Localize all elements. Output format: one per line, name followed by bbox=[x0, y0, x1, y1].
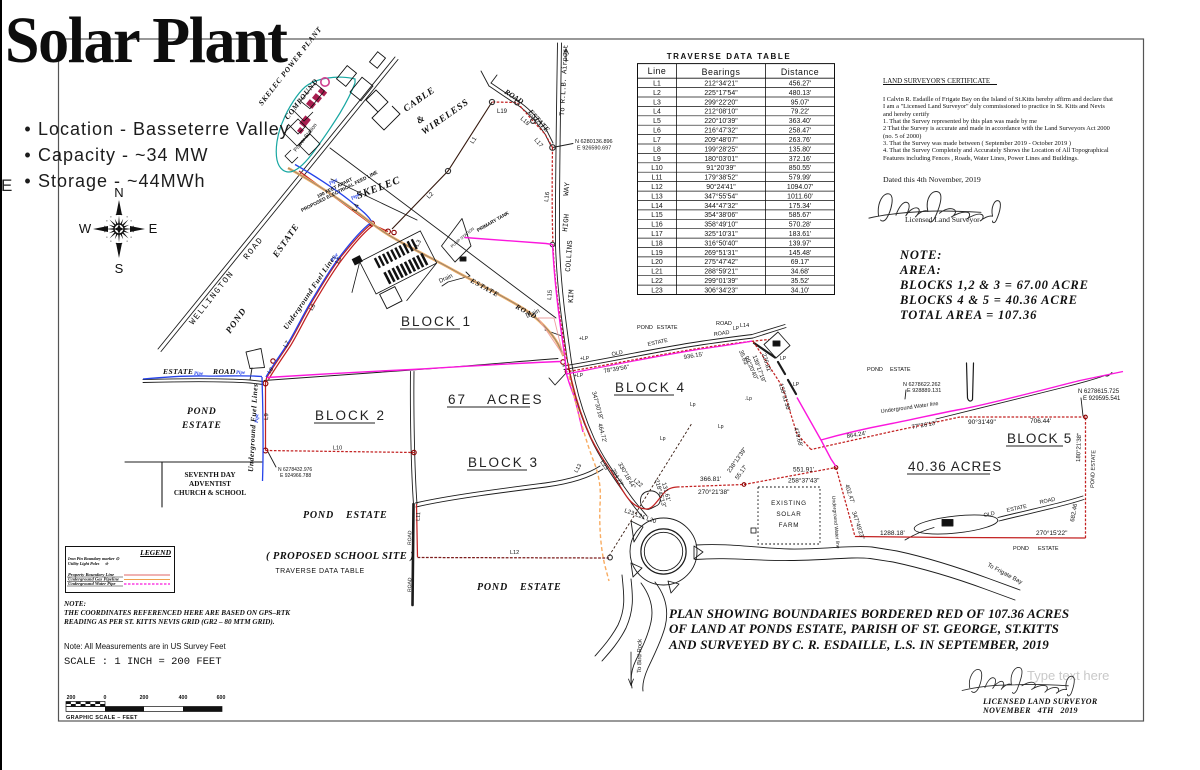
svg-text:WELLINGTON: WELLINGTON bbox=[188, 269, 237, 327]
svg-text:ESTATE: ESTATE bbox=[162, 367, 194, 376]
svg-text:SOLAR: SOLAR bbox=[776, 511, 801, 518]
svg-text:400: 400 bbox=[179, 695, 188, 701]
svg-text:288°59'21": 288°59'21" bbox=[704, 268, 738, 276]
svg-text:OLD: OLD bbox=[983, 511, 995, 519]
svg-text:464.72': 464.72' bbox=[596, 423, 607, 443]
svg-text:ESTATE: ESTATE bbox=[1038, 546, 1059, 552]
svg-text:212°08'10": 212°08'10" bbox=[704, 108, 738, 116]
svg-text:1288.18': 1288.18' bbox=[880, 530, 905, 537]
svg-text:E 924966.788: E 924966.788 bbox=[280, 473, 311, 479]
svg-text:L19: L19 bbox=[651, 250, 663, 257]
svg-text:850.55': 850.55' bbox=[789, 165, 811, 172]
svg-text:479.68': 479.68' bbox=[792, 427, 803, 447]
svg-text:L5: L5 bbox=[653, 118, 661, 125]
svg-text:179°38'52": 179°38'52" bbox=[704, 174, 738, 182]
svg-text:682.46': 682.46' bbox=[1070, 502, 1079, 522]
svg-text:354°38'06": 354°38'06" bbox=[704, 211, 738, 219]
svg-text:ESTATE: ESTATE bbox=[345, 510, 388, 521]
svg-text:LP: LP bbox=[733, 326, 740, 332]
svg-text:L4: L4 bbox=[351, 203, 361, 213]
svg-text:L22: L22 bbox=[651, 278, 663, 285]
svg-text:CABLE: CABLE bbox=[402, 86, 437, 115]
svg-text:L13: L13 bbox=[651, 193, 663, 200]
svg-text:L13: L13 bbox=[574, 463, 584, 474]
svg-text:270°15'22": 270°15'22" bbox=[1036, 529, 1068, 537]
svg-text:L15: L15 bbox=[651, 212, 663, 219]
svg-text:34.68': 34.68' bbox=[791, 269, 810, 276]
svg-text:SEVENTH DAY: SEVENTH DAY bbox=[184, 471, 236, 479]
svg-text:L18: L18 bbox=[651, 240, 663, 247]
svg-text:To Frigate Bay: To Frigate Bay bbox=[986, 562, 1023, 585]
svg-text:( PROPOSED SCHOOL SITE ): ( PROPOSED SCHOOL SITE ) bbox=[266, 551, 414, 562]
svg-text:ESTATE: ESTATE bbox=[519, 582, 562, 593]
svg-text:Pipe: Pipe bbox=[194, 372, 204, 377]
svg-text:L8: L8 bbox=[653, 146, 661, 153]
svg-text:ESTATE: ESTATE bbox=[526, 107, 552, 134]
svg-text:135.80': 135.80' bbox=[789, 146, 811, 153]
svg-text:Pipe: Pipe bbox=[255, 413, 260, 423]
svg-text:306°34'23": 306°34'23" bbox=[704, 286, 738, 294]
svg-text:ESTATE: ESTATE bbox=[181, 421, 222, 431]
svg-text:L9: L9 bbox=[264, 413, 270, 421]
svg-text:L16: L16 bbox=[651, 222, 663, 229]
svg-text:600: 600 bbox=[217, 695, 226, 701]
svg-text:275°47'42": 275°47'42" bbox=[704, 258, 738, 266]
svg-text:216°47'32": 216°47'32" bbox=[704, 127, 738, 135]
svg-text:E 926590.697: E 926590.697 bbox=[577, 146, 611, 152]
svg-text:TRAVERSE DATA TABLE: TRAVERSE DATA TABLE bbox=[667, 52, 792, 61]
svg-text:79.22': 79.22' bbox=[791, 109, 810, 116]
svg-text:LP: LP bbox=[793, 382, 800, 388]
svg-text:LP: LP bbox=[780, 356, 787, 362]
svg-text:POND: POND bbox=[867, 367, 883, 373]
svg-text:L20: L20 bbox=[651, 259, 663, 266]
svg-text:OLD: OLD bbox=[611, 350, 623, 358]
svg-text:69.17': 69.17' bbox=[791, 259, 810, 266]
svg-text:+LP: +LP bbox=[579, 336, 589, 342]
svg-text:258.47': 258.47' bbox=[789, 128, 811, 135]
svg-text:COLLINS: COLLINS bbox=[565, 240, 575, 272]
svg-text:HIGH: HIGH bbox=[562, 214, 572, 233]
svg-text:Line: Line bbox=[648, 66, 667, 76]
svg-text:POND: POND bbox=[303, 510, 334, 521]
svg-text:BLOCK 3: BLOCK 3 bbox=[468, 455, 539, 470]
svg-text:175.34': 175.34' bbox=[789, 203, 811, 210]
svg-text:L1: L1 bbox=[470, 136, 479, 145]
svg-text:L21: L21 bbox=[651, 269, 663, 276]
svg-text:L16: L16 bbox=[544, 191, 551, 202]
svg-text:E 929595.541: E 929595.541 bbox=[1083, 396, 1121, 402]
svg-text:EXISTING: EXISTING bbox=[771, 500, 807, 507]
svg-text:L17: L17 bbox=[532, 137, 543, 149]
svg-text:220°10'39": 220°10'39" bbox=[704, 117, 738, 125]
svg-text:L3: L3 bbox=[653, 99, 661, 106]
svg-text:ROAD: ROAD bbox=[713, 330, 730, 338]
svg-text:ACRES: ACRES bbox=[487, 392, 544, 407]
svg-text:L10: L10 bbox=[651, 165, 663, 172]
svg-text:S: S bbox=[115, 261, 124, 275]
svg-text:270°21'38": 270°21'38" bbox=[698, 488, 730, 496]
svg-text:90°24'41": 90°24'41" bbox=[706, 183, 736, 191]
svg-text:95.07': 95.07' bbox=[791, 99, 810, 106]
svg-text:347°55'54": 347°55'54" bbox=[704, 192, 738, 200]
svg-text:ROAD: ROAD bbox=[716, 321, 732, 327]
svg-text:L23 L21 L20: L23 L21 L20 bbox=[623, 508, 657, 525]
svg-text:67: 67 bbox=[448, 392, 467, 407]
svg-text:L6: L6 bbox=[653, 128, 661, 135]
svg-text:55.17': 55.17' bbox=[735, 464, 749, 481]
svg-text:Underground Water line: Underground Water line bbox=[830, 496, 841, 549]
svg-text:WIRELESS: WIRELESS bbox=[420, 97, 471, 137]
svg-text:200: 200 bbox=[67, 695, 76, 701]
svg-text:L19: L19 bbox=[497, 109, 508, 115]
svg-text:N: N bbox=[114, 185, 123, 200]
svg-text:To R.L.B. Airport: To R.L.B. Airport bbox=[559, 44, 571, 116]
svg-text:936.15': 936.15' bbox=[683, 352, 703, 361]
svg-text:E: E bbox=[149, 221, 158, 236]
svg-text:L14: L14 bbox=[651, 203, 663, 210]
svg-text:L7: L7 bbox=[653, 137, 661, 144]
svg-text:L9: L9 bbox=[653, 156, 661, 163]
svg-text:90°31'49": 90°31'49" bbox=[968, 418, 997, 426]
svg-text:Lp: Lp bbox=[718, 424, 724, 430]
svg-text:139.97': 139.97' bbox=[789, 240, 811, 247]
svg-text:POND: POND bbox=[187, 407, 217, 417]
svg-text:Lp: Lp bbox=[690, 402, 696, 408]
svg-text:TRAVERSE DATA TABLE: TRAVERSE DATA TABLE bbox=[275, 568, 364, 575]
svg-text:570.28': 570.28' bbox=[789, 222, 811, 229]
svg-text:40.36 ACRES: 40.36 ACRES bbox=[908, 459, 1002, 474]
svg-text:366.81': 366.81' bbox=[700, 476, 721, 483]
svg-text:ROAD: ROAD bbox=[407, 530, 413, 545]
svg-text:BLOCK 2: BLOCK 2 bbox=[315, 408, 386, 423]
svg-text:325°10'31": 325°10'31" bbox=[704, 230, 738, 238]
svg-text:225°17'54": 225°17'54" bbox=[704, 89, 738, 97]
svg-text:N 6278615.725: N 6278615.725 bbox=[1078, 389, 1120, 395]
svg-text:ROAD: ROAD bbox=[212, 367, 236, 376]
svg-text:585.67': 585.67' bbox=[789, 212, 811, 219]
svg-text:180°21'38": 180°21'38" bbox=[1076, 433, 1083, 462]
svg-text:372.16': 372.16' bbox=[789, 156, 811, 163]
svg-text:ESTATE: ESTATE bbox=[468, 276, 500, 299]
svg-text:299°01'39": 299°01'39" bbox=[704, 277, 738, 285]
svg-text:579.99': 579.99' bbox=[789, 175, 811, 182]
svg-text:299°22'20": 299°22'20" bbox=[704, 98, 738, 106]
svg-text:L10: L10 bbox=[333, 446, 342, 452]
svg-text:Underground Fuel Lines: Underground Fuel Lines bbox=[281, 253, 338, 331]
svg-text:L11: L11 bbox=[416, 512, 423, 521]
svg-text:Distance: Distance bbox=[781, 67, 819, 77]
svg-text:158°31'36": 158°31'36" bbox=[777, 383, 791, 413]
svg-text:L18: L18 bbox=[519, 116, 531, 128]
svg-text:.Lp: .Lp bbox=[745, 396, 752, 402]
svg-text:347°30'18": 347°30'18" bbox=[590, 391, 603, 421]
svg-text:258°37'43": 258°37'43" bbox=[788, 477, 820, 485]
svg-text:CHURCH & SCHOOL: CHURCH & SCHOOL bbox=[174, 489, 246, 497]
svg-text:269°51'31": 269°51'31" bbox=[704, 249, 738, 257]
svg-text:ESTATE: ESTATE bbox=[647, 338, 669, 348]
svg-text:+LP: +LP bbox=[580, 356, 590, 362]
svg-text:KIM: KIM bbox=[568, 289, 576, 303]
svg-text:FARM: FARM bbox=[779, 522, 800, 529]
svg-text:480.13': 480.13' bbox=[789, 90, 811, 97]
svg-text:145.48': 145.48' bbox=[789, 250, 811, 257]
svg-text:0: 0 bbox=[104, 695, 107, 701]
svg-text:L3: L3 bbox=[414, 239, 423, 248]
svg-text:ESTATE: ESTATE bbox=[890, 367, 911, 373]
svg-text:L2: L2 bbox=[653, 90, 661, 97]
svg-text:BLOCK 1: BLOCK 1 bbox=[401, 314, 472, 329]
svg-text:PRIMARY TANK: PRIMARY TANK bbox=[476, 210, 511, 234]
svg-text:Pipe: Pipe bbox=[236, 371, 246, 376]
svg-text:BLOCK 4: BLOCK 4 bbox=[615, 380, 686, 395]
svg-text:Underground Water line: Underground Water line bbox=[880, 401, 938, 415]
svg-text:263.76': 263.76' bbox=[789, 137, 811, 144]
svg-text:91°20'39": 91°20'39" bbox=[706, 164, 736, 172]
svg-text:L15: L15 bbox=[547, 289, 554, 300]
svg-text:GRAPHIC SCALE – FEET: GRAPHIC SCALE – FEET bbox=[66, 715, 138, 721]
svg-text:L14: L14 bbox=[740, 323, 749, 329]
svg-text:POND: POND bbox=[637, 325, 653, 331]
svg-text:180°03'01": 180°03'01" bbox=[704, 155, 738, 163]
svg-text:344°47'32": 344°47'32" bbox=[704, 202, 738, 210]
svg-text:ROAD: ROAD bbox=[513, 302, 538, 321]
svg-text:200: 200 bbox=[140, 695, 149, 701]
svg-text:ROAD: ROAD bbox=[407, 577, 413, 592]
svg-text:W: W bbox=[79, 221, 92, 236]
svg-text:L17: L17 bbox=[651, 231, 663, 238]
svg-text:358°49'10": 358°49'10" bbox=[704, 221, 738, 229]
svg-text:L11: L11 bbox=[652, 175, 663, 182]
svg-text:ADVENTIST: ADVENTIST bbox=[189, 480, 231, 488]
svg-text:34.10': 34.10' bbox=[791, 287, 810, 294]
svg-text:706.44': 706.44' bbox=[1030, 418, 1051, 425]
svg-text:L1: L1 bbox=[653, 81, 661, 88]
svg-text:Bearings: Bearings bbox=[702, 67, 741, 77]
svg-text:L4: L4 bbox=[653, 109, 661, 116]
svg-text:+LP: +LP bbox=[574, 373, 584, 379]
svg-text:POND: POND bbox=[477, 582, 508, 593]
svg-text:L12: L12 bbox=[510, 550, 519, 556]
svg-text:1011.60': 1011.60' bbox=[787, 193, 813, 200]
svg-text:Underground Fuel Lines: Underground Fuel Lines bbox=[246, 383, 260, 472]
svg-text:551.91': 551.91' bbox=[793, 467, 814, 474]
svg-text:363.40': 363.40' bbox=[789, 118, 811, 125]
svg-text:N 6280136.896: N 6280136.896 bbox=[575, 139, 613, 145]
svg-text:WAY: WAY bbox=[563, 182, 572, 197]
svg-text:209°48'07": 209°48'07" bbox=[704, 136, 738, 144]
svg-text:ESTATE: ESTATE bbox=[657, 325, 678, 331]
svg-text:316°50'40": 316°50'40" bbox=[704, 239, 738, 247]
svg-text:POND: POND bbox=[223, 306, 248, 335]
svg-text:1094.07': 1094.07' bbox=[787, 184, 813, 191]
svg-text:BLOCK 5: BLOCK 5 bbox=[1007, 431, 1072, 446]
svg-text:E 928889.131: E 928889.131 bbox=[907, 388, 941, 394]
svg-text:L23: L23 bbox=[651, 287, 663, 294]
svg-text:L12: L12 bbox=[651, 184, 663, 191]
svg-text:456.27': 456.27' bbox=[789, 81, 811, 88]
svg-text:212°34'21": 212°34'21" bbox=[704, 80, 738, 88]
svg-text:183.61': 183.61' bbox=[789, 231, 811, 238]
svg-text:POND: POND bbox=[1013, 546, 1029, 552]
svg-text:199°28'25": 199°28'25" bbox=[704, 145, 738, 153]
svg-text:77°26'10": 77°26'10" bbox=[911, 421, 937, 431]
svg-text:ESTATE: ESTATE bbox=[1006, 504, 1028, 514]
svg-text:ESTATE: ESTATE bbox=[270, 221, 301, 260]
svg-text:POND ESTATE: POND ESTATE bbox=[1090, 450, 1097, 489]
svg-text:35.52': 35.52' bbox=[791, 278, 810, 285]
svg-text:Lp: Lp bbox=[660, 436, 666, 442]
svg-text:To Bird Rock: To Bird Rock bbox=[637, 638, 644, 673]
svg-text:Underground Water Pipe: Underground Water Pipe bbox=[68, 581, 116, 586]
